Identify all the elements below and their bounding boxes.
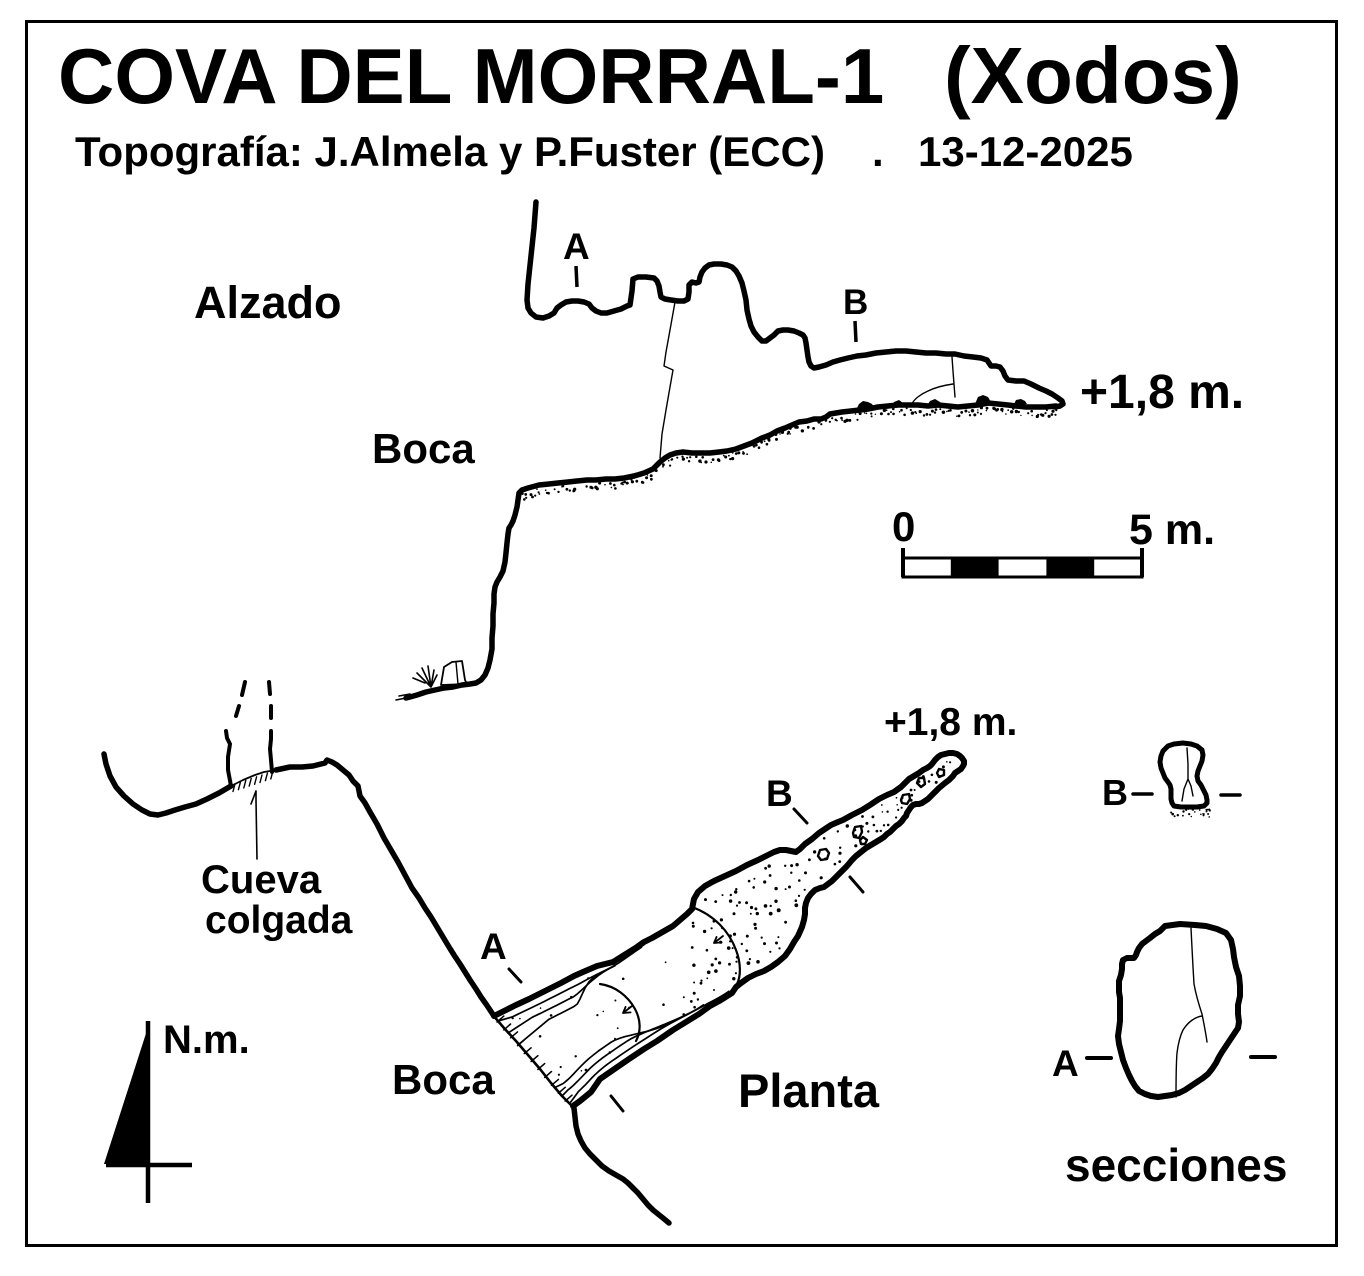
- svg-text:N.m.: N.m.: [163, 1018, 250, 1062]
- svg-text:secciones: secciones: [1065, 1139, 1287, 1191]
- svg-text:5 m.: 5 m.: [1129, 506, 1215, 554]
- svg-text:+1,8 m.: +1,8 m.: [884, 701, 1017, 744]
- svg-text:B: B: [766, 773, 793, 814]
- svg-text:+1,8 m.: +1,8 m.: [1080, 366, 1244, 419]
- svg-text:Planta: Planta: [738, 1064, 880, 1117]
- svg-text:Boca: Boca: [372, 425, 475, 472]
- svg-text:13-12-2025: 13-12-2025: [918, 128, 1133, 175]
- svg-text:Boca: Boca: [392, 1056, 495, 1103]
- svg-text:A: A: [1052, 1043, 1079, 1084]
- svg-text:0: 0: [892, 503, 915, 550]
- svg-text:.: .: [872, 128, 884, 175]
- svg-text:COVA DEL MORRAL-1: COVA DEL MORRAL-1: [58, 32, 884, 120]
- svg-text:B: B: [843, 283, 868, 322]
- svg-text:Cueva: Cueva: [201, 858, 322, 902]
- svg-text:Alzado: Alzado: [194, 277, 342, 328]
- svg-text:B: B: [1102, 772, 1128, 813]
- svg-text:A: A: [480, 926, 507, 967]
- svg-text:colgada: colgada: [205, 899, 353, 942]
- svg-text:Topografía: J.Almela y P.Fuste: Topografía: J.Almela y P.Fuster (ECC): [75, 128, 825, 175]
- svg-text:(Xodos): (Xodos): [944, 31, 1242, 120]
- svg-text:A: A: [563, 226, 590, 267]
